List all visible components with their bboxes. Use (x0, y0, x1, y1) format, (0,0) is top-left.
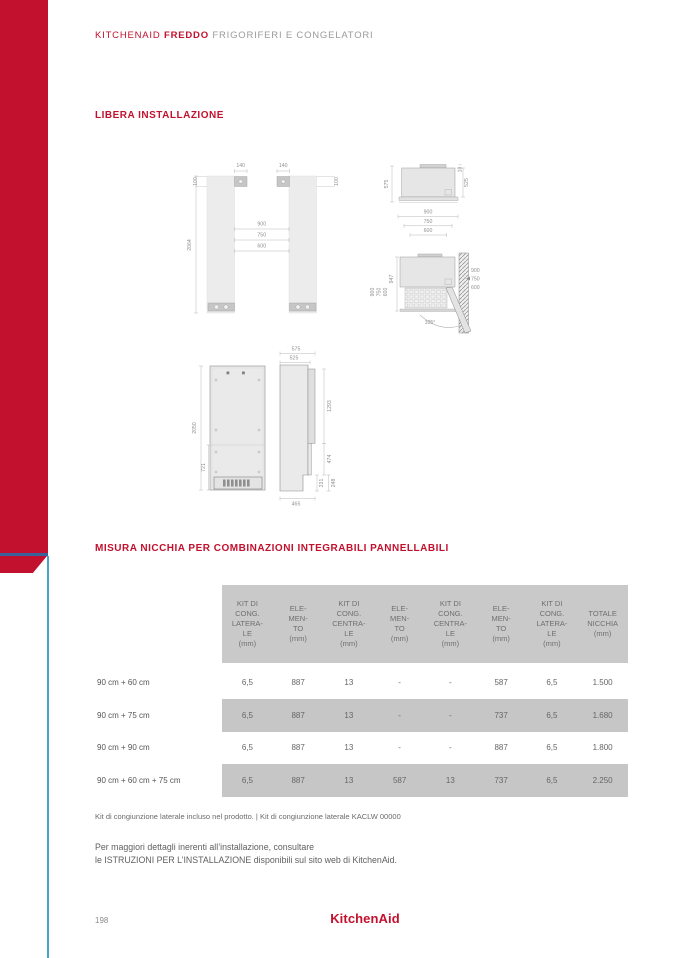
side-body (280, 365, 308, 491)
dim-label: 600 (471, 285, 480, 291)
cell: 6,5 (527, 743, 578, 752)
dim-label: 10 (458, 167, 464, 173)
dim-label: 750 (377, 288, 383, 297)
cell: 6,5 (527, 678, 578, 687)
page-number: 198 (95, 916, 108, 925)
column-header: ELE- MEN- TO (mm) (273, 604, 324, 644)
cell: 13 (425, 776, 476, 785)
red-sidebar-notch (0, 556, 47, 573)
side-door (308, 369, 315, 443)
dim-label: 900 (257, 222, 266, 228)
dim-label: 465 (292, 502, 301, 508)
cell: 6,5 (222, 776, 273, 785)
row-label: 90 cm + 60 cm + 75 cm (97, 764, 227, 797)
open-door-diagram: 105° 947 900 750 600 900 750 600 (370, 245, 490, 340)
cell: 13 (324, 776, 375, 785)
column-header: KIT DI CONG. CENTRA- LE (mm) (324, 599, 375, 648)
cell: 887 (273, 678, 324, 687)
cell: 887 (273, 743, 324, 752)
dim-label: 231 (319, 479, 325, 488)
cell: 587 (374, 776, 425, 785)
dim-label: 1293 (327, 400, 333, 412)
rear-panel (210, 366, 265, 490)
cell: 6,5 (222, 711, 273, 720)
header-subtitle: FRIGORIFERI E CONGELATORI (212, 30, 373, 41)
column-header: KIT DI CONG. CENTRA- LE (mm) (425, 599, 476, 648)
cell: - (374, 678, 425, 687)
cell: - (374, 743, 425, 752)
niche-table-body: 6,5 887 13 - - 587 6,5 1.500 6,5 887 13 … (222, 666, 628, 797)
cell: 1.800 (577, 743, 628, 752)
dim-label: 2050 (192, 422, 198, 434)
row-label: 90 cm + 75 cm (97, 699, 227, 732)
dim-label: 600 (383, 288, 389, 297)
cell: 587 (476, 678, 527, 687)
kit-note: Kit di congiunzione laterale incluso nel… (95, 812, 401, 821)
cell: 13 (324, 743, 375, 752)
column-header: KIT DI CONG. LATERA- LE (mm) (222, 599, 273, 648)
section-title-free-installation: LIBERA INSTALLAZIONE (95, 110, 224, 121)
cell: 13 (324, 678, 375, 687)
cell: - (425, 711, 476, 720)
appliance-body-top (402, 168, 455, 197)
cell: - (425, 678, 476, 687)
left-red-sidebar (0, 0, 48, 553)
dim-label: 474 (327, 455, 333, 464)
row-label: 90 cm + 90 cm (97, 732, 227, 765)
dim-label: 721 (201, 463, 207, 472)
dim-label: 750 (424, 219, 433, 225)
cell: 6,5 (527, 776, 578, 785)
cell: 6,5 (222, 678, 273, 687)
column-header: TOTALE NICCHIA (mm) (577, 609, 628, 639)
dim-label: 248 (331, 479, 337, 488)
dim-label: 2064 (187, 239, 193, 251)
catalog-page: { "header": { "brand": "KITCHENAID", "pr… (0, 0, 677, 958)
installation-note: Per maggiori dettagli inerenti all’insta… (95, 841, 397, 866)
dim-label: 140 (279, 163, 288, 169)
dim-label: 900 (424, 210, 433, 216)
dim-label: 750 (257, 233, 266, 239)
cell: 6,5 (222, 743, 273, 752)
rear-side-diagram: 2050 721 575 525 1293 474 231 248 465 (190, 343, 350, 508)
kitchenaid-logo: KitchenAid (310, 911, 420, 926)
header-brand: KITCHENAID (95, 30, 161, 41)
base-plate-right (290, 303, 317, 311)
table-row: 6,5 887 13 587 13 737 6,5 2.250 (222, 764, 628, 797)
dim-label: 575 (292, 347, 301, 353)
cell: 887 (273, 711, 324, 720)
front-view-diagram: 140 140 100 100 2064 900 750 600 (185, 150, 350, 320)
dim-label: 750 (471, 277, 480, 283)
installation-note-line1: Per maggiori dettagli inerenti all’insta… (95, 841, 397, 854)
cell: 2.250 (577, 776, 628, 785)
cell: - (374, 711, 425, 720)
section-title-niche: MISURA NICCHIA PER COMBINAZIONI INTEGRAB… (95, 543, 449, 554)
dim-label: 140 (236, 163, 245, 169)
header-product: FREDDO (164, 30, 209, 41)
cell: 13 (324, 711, 375, 720)
cell: 1.680 (577, 711, 628, 720)
dim-label: 600 (257, 244, 266, 250)
column-header: KIT DI CONG. LATERA- LE (mm) (527, 599, 578, 648)
cell: 6,5 (527, 711, 578, 720)
cell: 887 (273, 776, 324, 785)
cell: 737 (476, 711, 527, 720)
table-row: 6,5 887 13 - - 587 6,5 1.500 (222, 666, 628, 699)
dim-label: 100 (334, 177, 340, 186)
vent-grille (214, 477, 262, 489)
dim-label: 900 (471, 268, 480, 274)
blue-divider-line (0, 553, 48, 556)
dim-label: 525 (290, 356, 299, 362)
appliance-body-top (400, 257, 455, 287)
cell: 1.500 (577, 678, 628, 687)
teal-vertical-line (47, 556, 49, 958)
document-header: KITCHENAID FREDDO FRIGORIFERI E CONGELAT… (95, 30, 373, 41)
row-label: 90 cm + 60 cm (97, 666, 227, 699)
installation-note-line2: le ISTRUZIONI PER L’INSTALLAZIONE dispon… (95, 854, 397, 867)
dim-label: 900 (370, 288, 376, 297)
dim-label: 947 (389, 275, 395, 284)
cell: 737 (476, 776, 527, 785)
dim-label: 105° (425, 320, 436, 326)
dim-label: 600 (424, 228, 433, 234)
column-header: ELE- MEN- TO (mm) (476, 604, 527, 644)
appliance-door-top (399, 197, 458, 201)
top-view-diagram: 575 10 525 900 750 600 (375, 152, 485, 237)
table-row: 6,5 887 13 - - 887 6,5 1.800 (222, 732, 628, 765)
cell: - (425, 743, 476, 752)
base-plate-left (208, 303, 235, 311)
dim-label: 575 (384, 180, 390, 189)
niche-table-header: KIT DI CONG. LATERA- LE (mm) ELE- MEN- T… (222, 585, 628, 663)
column-header: ELE- MEN- TO (mm) (374, 604, 425, 644)
cell: 887 (476, 743, 527, 752)
table-row: 6,5 887 13 - - 737 6,5 1.680 (222, 699, 628, 732)
dim-label: 525 (464, 178, 470, 187)
